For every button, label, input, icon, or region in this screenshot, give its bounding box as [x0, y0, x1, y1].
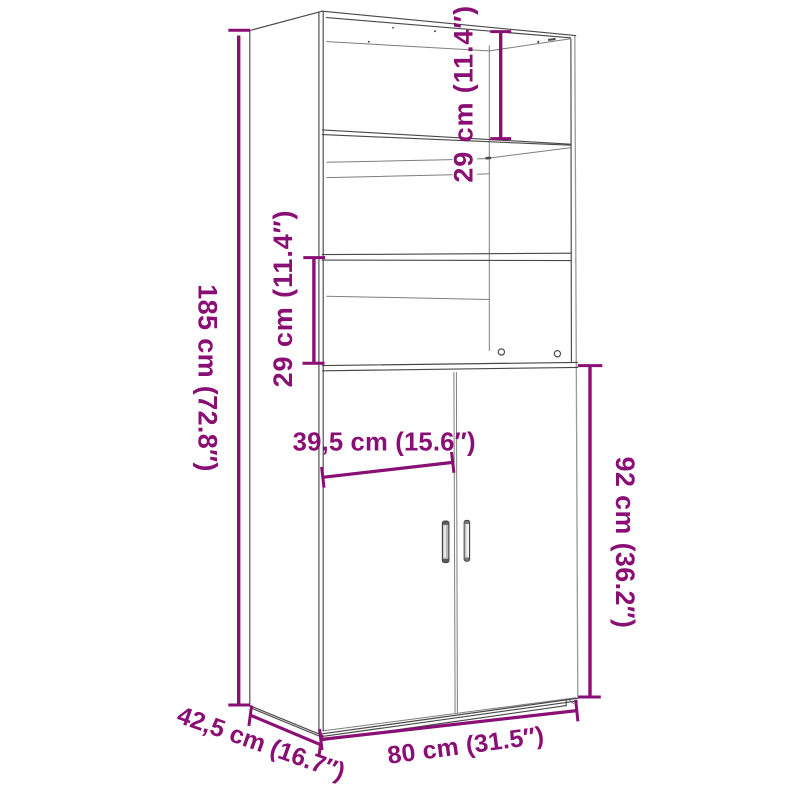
svg-text:92 cm (36.2″): 92 cm (36.2″) [610, 457, 640, 629]
svg-text:29 cm (11.4″): 29 cm (11.4″) [268, 210, 298, 388]
svg-text:39,5 cm (15.6″): 39,5 cm (15.6″) [293, 428, 476, 456]
svg-text:29 cm (11.4″): 29 cm (11.4″) [449, 5, 479, 183]
svg-text:185 cm (72.8″): 185 cm (72.8″) [193, 284, 223, 471]
